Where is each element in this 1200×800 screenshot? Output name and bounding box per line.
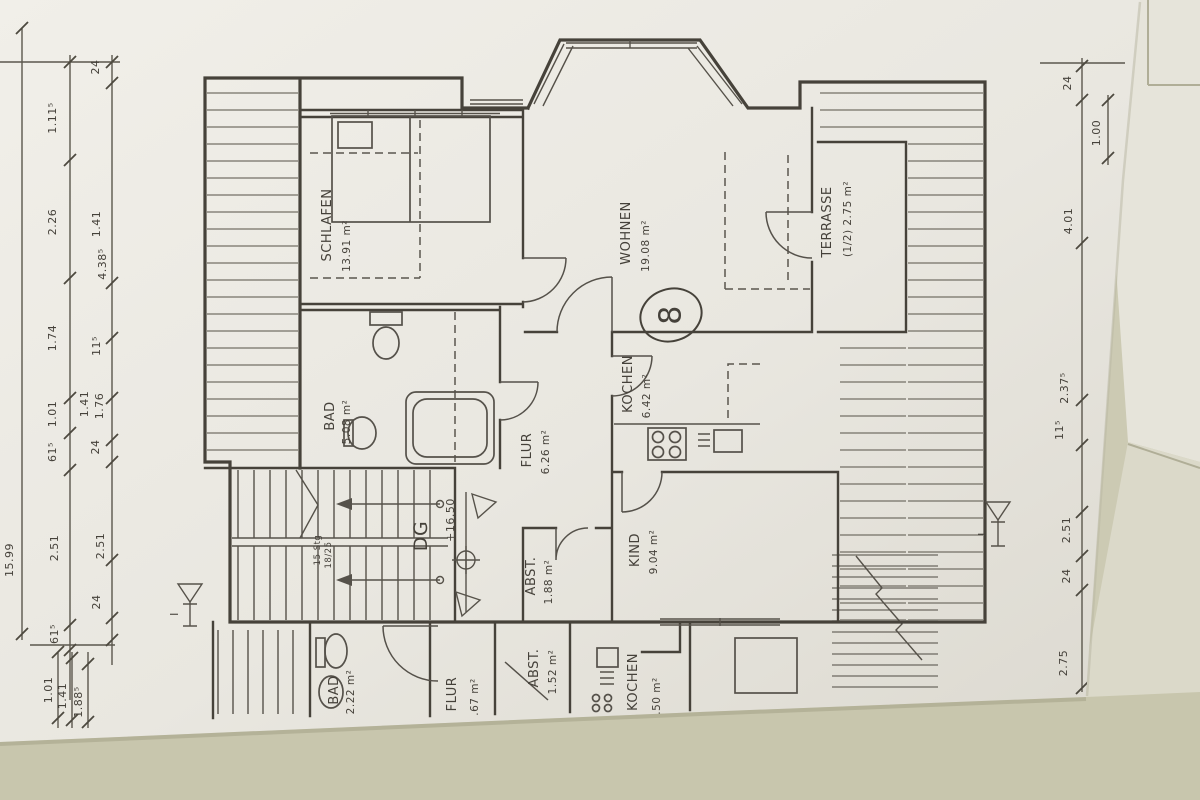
elevation-label: +16.50: [444, 498, 457, 542]
room-area-bad-lower: 2.22 m²: [345, 670, 357, 715]
dim-label: 2.75: [1057, 650, 1070, 677]
photo-of-floor-plan: +16.50 I I 8 SCHLAFEN 13.91 m² BAD 5.08 …: [0, 0, 1200, 800]
dim-label: 1.01: [42, 677, 55, 704]
room-area-abst: 1.88 m²: [543, 560, 555, 605]
room-label-flur: FLUR: [520, 433, 535, 468]
section-letter: I: [168, 612, 181, 616]
room-label-terrasse: TERRASSE: [820, 186, 835, 258]
dim-label: 1.88⁵: [72, 686, 85, 717]
stair-note-1: 15 Stg: [313, 535, 323, 566]
dim-label: 1.76: [93, 393, 106, 420]
room-label-kind: KIND: [628, 533, 643, 567]
dim-label: 24: [1061, 76, 1074, 91]
dim-label: 1.41: [56, 683, 69, 710]
room-area-schlafen: 13.91 m²: [341, 220, 353, 272]
dim-left-total: 15.99: [3, 543, 16, 577]
dim-label: 4.38⁵: [96, 248, 109, 279]
room-area-kochen-lower: .50 m²: [651, 677, 663, 714]
stair-note-2: 18/25: [324, 542, 334, 569]
dim-label: 11⁵: [1053, 420, 1066, 440]
room-area-kind: 9.04 m²: [648, 530, 660, 575]
room-area-flur: 6.26 m²: [540, 430, 552, 475]
room-area-kochen: 6.42 m²: [641, 374, 653, 419]
dim-label: 24: [89, 60, 102, 75]
dim-label: 2.51: [48, 535, 61, 562]
dim-label: 1.11⁵: [46, 102, 59, 133]
dim-label: 11⁵: [90, 336, 103, 356]
dim-label: 2.37⁵: [1058, 372, 1071, 403]
room-label-kochen: KOCHEN: [621, 355, 636, 413]
floor-plan-photo: +16.50 I I 8 SCHLAFEN 13.91 m² BAD 5.08 …: [0, 0, 1200, 800]
room-label-bad-lower: BAD: [327, 675, 342, 704]
room-label-bad: BAD: [323, 401, 338, 430]
dim-label: 1.41: [90, 211, 103, 238]
dim-label: 4.01: [1062, 208, 1075, 235]
room-label-schlafen: SCHLAFEN: [320, 189, 335, 262]
room-label-flur-lower: FLUR: [445, 677, 460, 712]
room-label-wohnen: WOHNEN: [619, 201, 634, 265]
roof-hatch-top-right: [820, 84, 983, 140]
room-label-abst-lower: ABST.: [527, 649, 542, 688]
dim-label: 61⁵: [48, 624, 61, 644]
apartment-number: 8: [654, 305, 689, 325]
floor-label-dg: DG: [410, 521, 432, 551]
roof-hatch-left: [207, 80, 298, 462]
room-area-bad: 5.08 m²: [341, 400, 353, 445]
dim-label: 2.26: [46, 209, 59, 236]
room-area-terrasse: (1/2) 2.75 m²: [842, 181, 854, 257]
dim-label: 2.51: [94, 533, 107, 560]
room-area-abst-lower: 1.52 m²: [547, 650, 559, 695]
room-area-wohnen: 19.08 m²: [640, 220, 652, 272]
dim-label: 1.41: [78, 391, 91, 418]
dim-label: 2.51: [1060, 517, 1073, 544]
section-letter: I: [976, 532, 989, 536]
dim-label: 61⁵: [46, 442, 59, 462]
dim-label: 1.74: [46, 325, 59, 352]
room-area-flur-lower: .67 m²: [469, 678, 481, 715]
dim-label: 1.00: [1090, 120, 1103, 147]
room-label-kochen-lower: KOCHEN: [626, 653, 641, 711]
dim-label: 24: [90, 595, 103, 610]
roof-hatch-right: [908, 142, 983, 620]
dim-label: 1.01: [46, 401, 59, 428]
dim-label: 24: [89, 440, 102, 455]
dim-label: 24: [1060, 569, 1073, 584]
room-label-abst: ABST.: [524, 557, 539, 596]
